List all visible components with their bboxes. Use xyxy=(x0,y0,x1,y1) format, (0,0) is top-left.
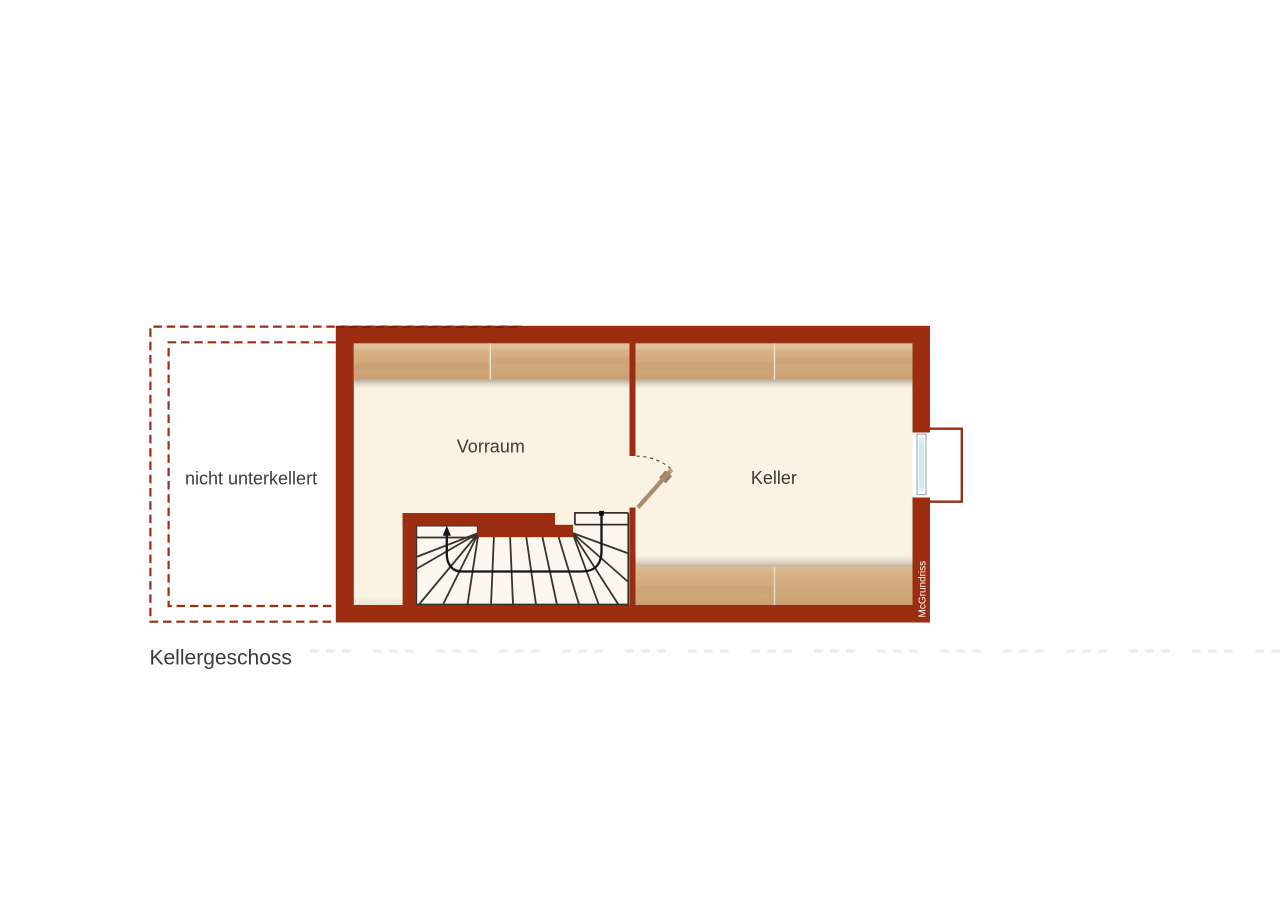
svg-text:nicht unterkellert: nicht unterkellert xyxy=(185,468,317,488)
svg-text:Kellergeschoss: Kellergeschoss xyxy=(150,647,292,670)
svg-text:Vorraum: Vorraum xyxy=(457,436,525,456)
svg-text:Keller: Keller xyxy=(751,468,797,488)
svg-text:McGrundriss: McGrundriss xyxy=(918,561,929,618)
